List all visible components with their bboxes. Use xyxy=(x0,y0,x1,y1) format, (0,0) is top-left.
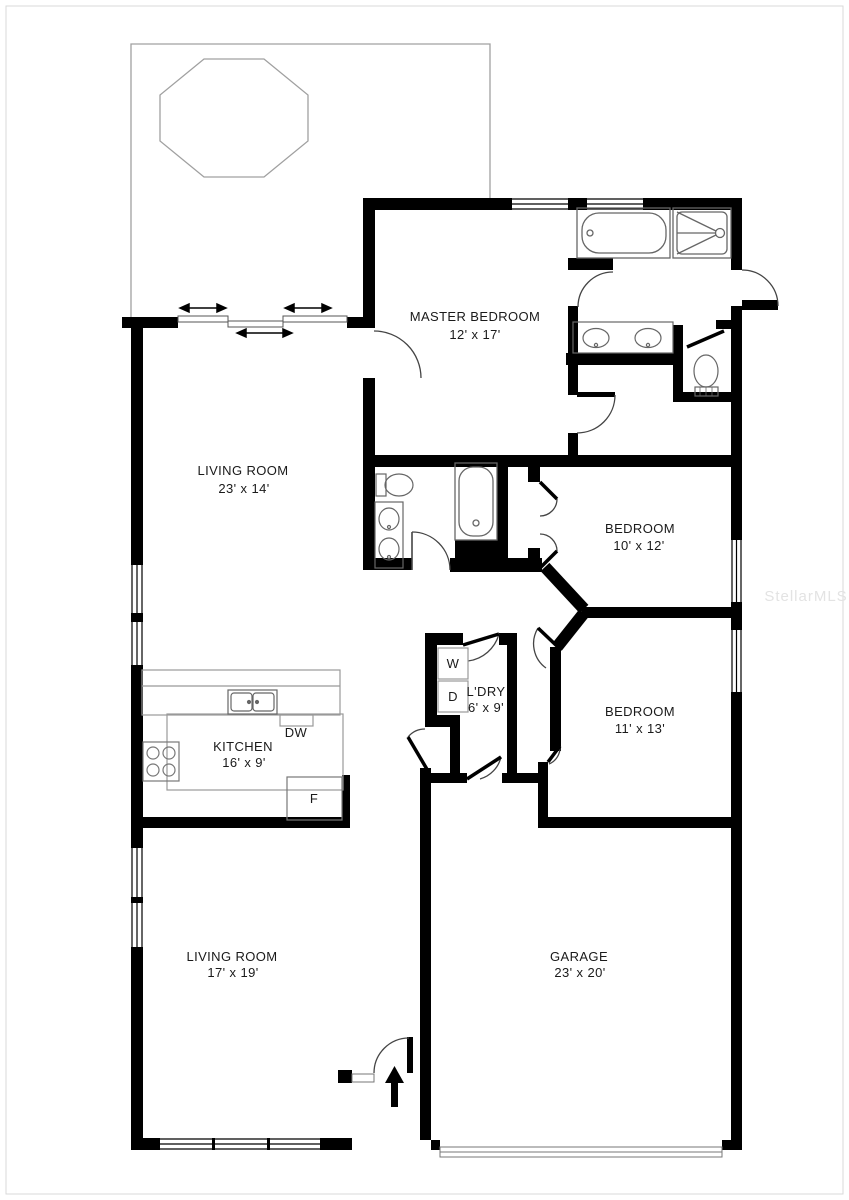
room-dims-bedroom-2: 11' x 13' xyxy=(615,721,665,736)
room-dims-garage: 23' x 20' xyxy=(554,965,605,980)
sliding-door-arrows-icon-part xyxy=(285,304,294,312)
window xyxy=(732,630,741,692)
master-shower-part xyxy=(677,212,716,254)
room-label-living-room-1: LIVING ROOM xyxy=(197,463,288,478)
walls-part xyxy=(731,198,742,270)
walls-part xyxy=(267,1138,270,1150)
door-arc xyxy=(412,532,450,570)
kitchen-sink xyxy=(228,690,277,714)
bath2-bathtub-part xyxy=(455,463,497,540)
walls-part xyxy=(731,306,742,540)
walls-part xyxy=(538,817,742,828)
cooktop-part xyxy=(163,747,175,759)
door-leafs-part xyxy=(463,634,499,645)
room-label-bedroom-2: BEDROOM xyxy=(605,704,675,719)
bath2-vanity-sinks-part xyxy=(379,538,399,560)
walls-part xyxy=(450,727,460,775)
bath2-toilet-part xyxy=(385,474,413,496)
door-arc xyxy=(578,272,613,307)
walls-part xyxy=(566,353,673,365)
walls-part xyxy=(425,715,460,727)
window xyxy=(512,199,568,209)
door-arc xyxy=(577,395,615,433)
walls-part xyxy=(131,1138,160,1150)
walls-part xyxy=(347,317,375,328)
master-vanity-sinks-part xyxy=(635,329,661,348)
bath2-bathtub xyxy=(455,463,497,540)
walls-part xyxy=(431,1140,440,1150)
room-label-garage: GARAGE xyxy=(550,949,608,964)
hall-diagonal-walls xyxy=(545,567,584,647)
walls-part xyxy=(731,692,742,1140)
door-arc xyxy=(374,1038,409,1073)
master-shower-part xyxy=(716,229,725,238)
room-dims-kitchen: 16' x 9' xyxy=(222,755,266,770)
window xyxy=(132,848,142,897)
window xyxy=(160,1139,212,1149)
kitchen-sink-part xyxy=(256,701,259,704)
entry-arrow-icon-part xyxy=(385,1066,404,1083)
watermark: StellarMLS xyxy=(764,588,847,605)
refrigerator-label: F xyxy=(310,791,318,806)
entry-arrow-icon xyxy=(385,1066,404,1107)
sliding-door-arrows-icon-part xyxy=(322,304,331,312)
walls-part xyxy=(742,300,778,310)
floor-plan-svg: MASTER BEDROOM 12' x 17' LIVING ROOM 23'… xyxy=(0,0,849,1200)
floor-plan-svg-part: MASTER BEDROOM 12' x 17' LIVING ROOM 23'… xyxy=(186,309,847,980)
dryer-label: D xyxy=(448,689,458,704)
window xyxy=(270,1139,320,1149)
walls-part xyxy=(550,647,561,751)
cooktop-part xyxy=(143,742,179,781)
door-leafs-part xyxy=(408,737,428,771)
walls-part xyxy=(528,467,540,482)
walls-part xyxy=(131,317,143,565)
washer-label: W xyxy=(447,656,460,671)
walls-part xyxy=(507,633,517,777)
sliding-door-arrows-icon-part xyxy=(217,304,226,312)
master-vanity-sinks-part xyxy=(594,343,597,346)
walls-part xyxy=(538,762,548,817)
walls-part xyxy=(455,540,497,558)
window xyxy=(132,622,142,665)
window xyxy=(132,903,142,947)
sliding-door-arrows-icon-part xyxy=(237,329,246,337)
walls-part xyxy=(131,897,143,903)
walls-part xyxy=(338,1070,352,1083)
room-dims-living-room-1: 23' x 14' xyxy=(218,481,269,496)
room-label-living-room-2: LIVING ROOM xyxy=(186,949,277,964)
walls-part xyxy=(420,768,431,1140)
kitchen-sink-part xyxy=(248,701,251,704)
cooktop-part xyxy=(147,747,159,759)
window xyxy=(132,565,142,613)
walls-part xyxy=(722,1140,742,1150)
sliding-door-panels-part xyxy=(178,316,228,322)
walls-part xyxy=(363,455,742,467)
walls-part xyxy=(577,392,615,397)
walls-part xyxy=(673,325,683,402)
room-label-laundry: L'DRY xyxy=(467,684,506,699)
room-label-kitchen: KITCHEN xyxy=(213,739,273,754)
walls-part xyxy=(131,817,350,828)
master-vanity-sinks xyxy=(573,322,673,353)
master-vanity-sinks-part xyxy=(583,329,609,348)
sliding-door-panels xyxy=(178,316,347,327)
walls-part xyxy=(407,1037,413,1073)
master-bathtub xyxy=(577,208,670,258)
spa-octagon xyxy=(160,59,308,177)
entry-arrow-icon-part xyxy=(391,1082,398,1107)
walls-part xyxy=(582,607,742,618)
walls-part xyxy=(568,258,613,270)
sliding-door-panels-part xyxy=(228,321,283,327)
sliding-door-panels-part xyxy=(283,316,347,322)
door-arc xyxy=(540,499,557,516)
hall-diagonal-walls-part xyxy=(545,567,584,609)
window xyxy=(732,540,741,602)
walls-part xyxy=(363,198,375,327)
master-vanity-sinks-part xyxy=(646,343,649,346)
walls-part xyxy=(320,1138,352,1150)
bath2-vanity-sinks-part xyxy=(388,556,391,559)
door-leafs-part xyxy=(538,628,559,648)
walls-part xyxy=(716,320,731,329)
walls-part xyxy=(131,613,143,622)
cooktop xyxy=(143,742,179,781)
walls-part xyxy=(131,947,143,1138)
door-arc xyxy=(408,729,425,737)
walls-part xyxy=(568,433,578,455)
walls-part xyxy=(363,378,375,570)
patio-outline xyxy=(131,44,490,317)
door-arc xyxy=(540,534,557,551)
master-bathtub-part xyxy=(587,230,593,236)
bath2-toilet xyxy=(376,474,413,496)
door-leafs-part xyxy=(540,482,557,499)
walls-part xyxy=(528,548,540,570)
kitchen-counter xyxy=(142,670,343,790)
walls-part xyxy=(212,1138,215,1150)
bath2-bathtub-part xyxy=(473,520,479,526)
walls-part xyxy=(425,633,437,718)
walls-part xyxy=(425,773,467,783)
window xyxy=(215,1139,267,1149)
room-label-bedroom-1: BEDROOM xyxy=(605,521,675,536)
master-shower xyxy=(673,208,731,258)
thresholds xyxy=(352,1074,722,1157)
patio-edge xyxy=(131,44,490,317)
door-leafs-part xyxy=(687,331,724,347)
room-dims-bedroom-1: 10' x 12' xyxy=(613,538,664,553)
floor-plan-page: MASTER BEDROOM 12' x 17' LIVING ROOM 23'… xyxy=(0,0,849,1200)
walls-part xyxy=(122,317,178,328)
hall-diagonal-walls-part xyxy=(557,613,584,647)
master-toilet-part xyxy=(694,355,718,387)
walls-part xyxy=(497,467,508,570)
cooktop-part xyxy=(163,764,175,776)
walls-part xyxy=(363,198,512,210)
sliding-door-arrows-icon-part xyxy=(180,304,189,312)
master-vanity-sinks-part xyxy=(573,322,673,353)
cooktop-part xyxy=(147,764,159,776)
bath2-vanity-sinks-part xyxy=(379,508,399,530)
room-dims-laundry: 6' x 9' xyxy=(468,700,504,715)
master-toilet xyxy=(694,355,718,396)
master-bathtub-part xyxy=(582,213,666,253)
bath2-vanity-sinks-part xyxy=(388,526,391,529)
door-arc xyxy=(374,331,421,378)
entry-threshold xyxy=(352,1074,374,1082)
room-label-master-bedroom: MASTER BEDROOM xyxy=(410,309,541,324)
room-dims-living-room-2: 17' x 19' xyxy=(207,965,258,980)
room-dims-master-bedroom: 12' x 17' xyxy=(449,327,500,342)
walls-part xyxy=(673,392,742,402)
dishwasher-label: DW xyxy=(285,725,308,740)
sliding-door-arrows-icon-part xyxy=(283,329,292,337)
walls-part xyxy=(502,773,542,783)
